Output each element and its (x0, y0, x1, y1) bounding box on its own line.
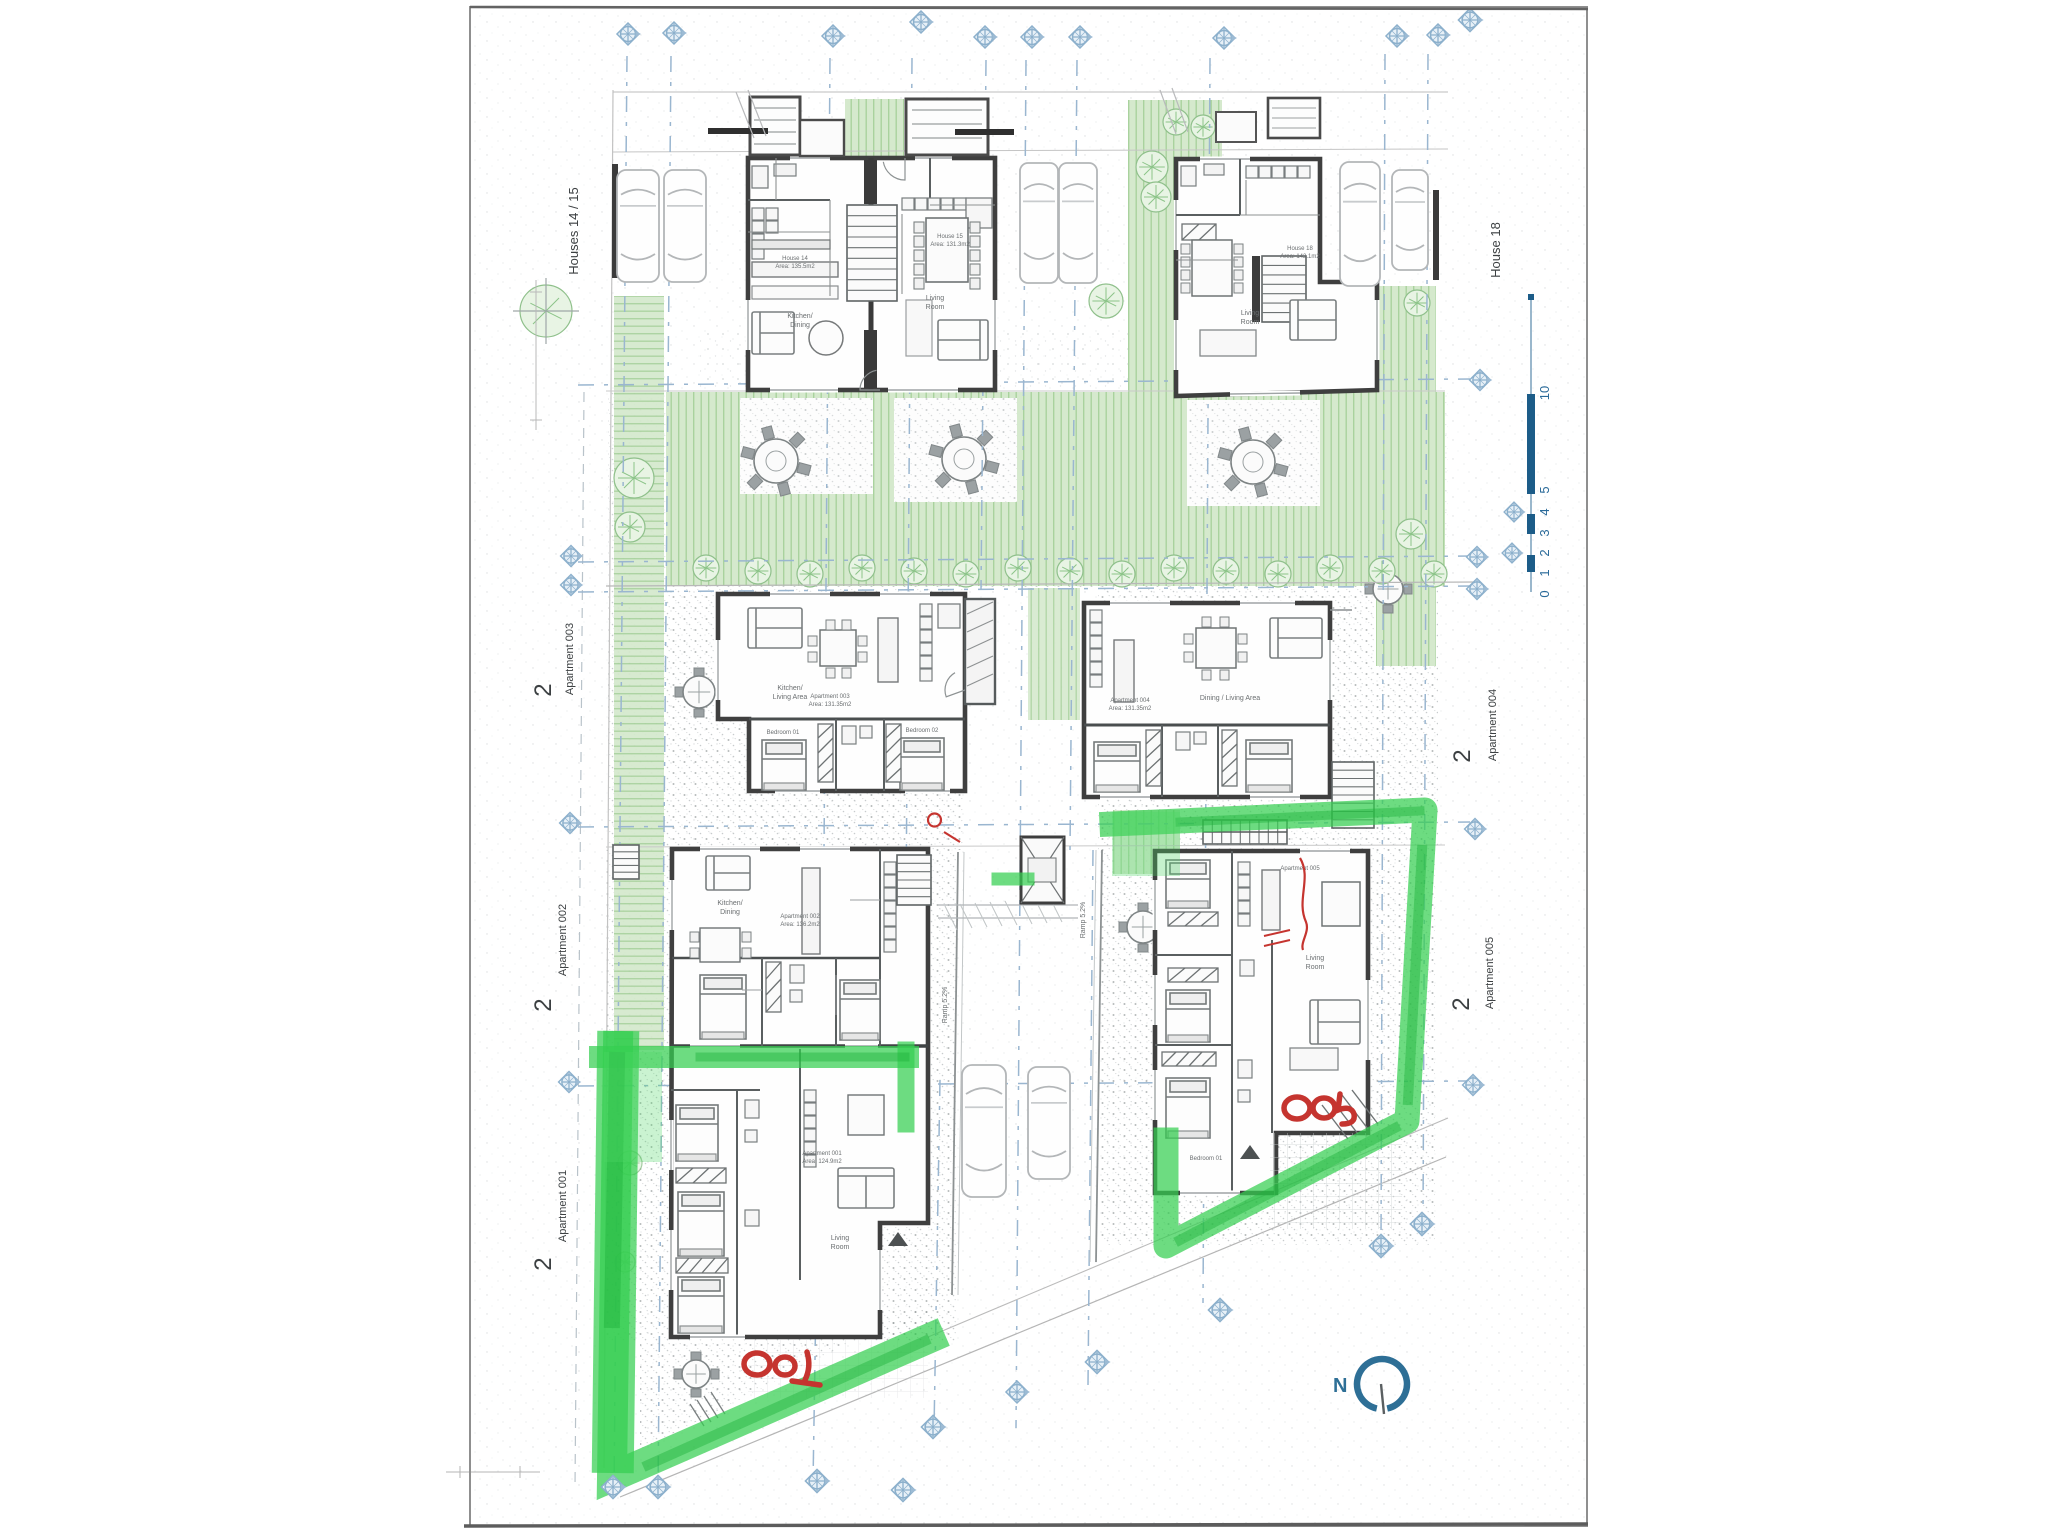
svg-text:0: 0 (1537, 590, 1552, 597)
svg-text:Room: Room (1306, 964, 1325, 971)
svg-text:Living: Living (926, 295, 944, 302)
svg-text:Apartment 003: Apartment 003 (810, 694, 850, 700)
svg-text:Dining: Dining (790, 322, 810, 329)
svg-text:2: 2 (1537, 549, 1552, 556)
svg-text:3: 3 (1537, 529, 1552, 536)
svg-text:2: 2 (1448, 997, 1475, 1010)
svg-text:Area: 135.5m2: Area: 135.5m2 (775, 264, 815, 270)
svg-text:Living: Living (1306, 955, 1324, 962)
svg-text:House 18: House 18 (1287, 246, 1313, 252)
svg-text:Living: Living (1241, 310, 1259, 317)
svg-text:Apartment 004: Apartment 004 (1487, 689, 1499, 761)
svg-text:Room: Room (926, 304, 945, 311)
svg-text:Apartment 001: Apartment 001 (557, 1170, 569, 1242)
svg-text:Kitchen/: Kitchen/ (787, 313, 812, 320)
svg-text:Apartment 005: Apartment 005 (1280, 866, 1320, 872)
svg-text:4: 4 (1537, 508, 1552, 515)
svg-text:Bedroom 02: Bedroom 02 (906, 728, 939, 734)
svg-text:Room: Room (831, 1244, 850, 1251)
svg-text:Area: 136.2m2: Area: 136.2m2 (780, 922, 820, 928)
svg-text:Apartment 002: Apartment 002 (557, 904, 569, 976)
svg-text:Area: 131.35m2: Area: 131.35m2 (1109, 706, 1152, 712)
svg-text:House 15: House 15 (937, 234, 963, 240)
svg-text:Apartment 003: Apartment 003 (564, 623, 576, 695)
svg-text:2: 2 (1449, 749, 1476, 762)
svg-text:Bedroom 01: Bedroom 01 (1190, 1156, 1223, 1162)
svg-text:Dining: Dining (720, 909, 740, 916)
svg-text:Houses 14 / 15: Houses 14 / 15 (566, 187, 581, 274)
svg-text:Dining / Living Area: Dining / Living Area (1200, 695, 1260, 702)
svg-text:Kitchen/: Kitchen/ (717, 900, 742, 907)
svg-text:10: 10 (1537, 386, 1552, 400)
svg-text:Bedroom 01: Bedroom 01 (767, 730, 800, 736)
svg-text:Area: 131.35m2: Area: 131.35m2 (809, 702, 852, 708)
svg-text:Living: Living (831, 1235, 849, 1242)
svg-text:House 18: House 18 (1488, 222, 1503, 278)
svg-text:Apartment 004: Apartment 004 (1110, 698, 1150, 704)
svg-text:Area: 124.9m2: Area: 124.9m2 (802, 1159, 842, 1165)
svg-text:Living Area: Living Area (773, 694, 808, 701)
svg-text:Area: 131.3m2: Area: 131.3m2 (930, 242, 970, 248)
svg-text:2: 2 (530, 998, 557, 1011)
svg-text:Ramp 5.2%: Ramp 5.2% (1080, 902, 1087, 939)
svg-text:5: 5 (1537, 486, 1552, 493)
svg-text:Ramp 5.2%: Ramp 5.2% (942, 987, 949, 1024)
svg-text:Room: Room (1241, 319, 1260, 326)
svg-text:2: 2 (530, 683, 557, 696)
svg-text:1: 1 (1537, 569, 1552, 576)
svg-text:2: 2 (530, 1257, 557, 1270)
svg-text:Area: 142.1m2: Area: 142.1m2 (1280, 254, 1320, 260)
svg-text:Apartment 001: Apartment 001 (802, 1151, 842, 1157)
svg-text:N: N (1333, 1375, 1347, 1397)
svg-text:Kitchen/: Kitchen/ (777, 685, 802, 692)
svg-text:House 14: House 14 (782, 256, 808, 262)
svg-text:Apartment 005: Apartment 005 (1484, 937, 1496, 1009)
svg-text:Apartment 002: Apartment 002 (780, 914, 820, 920)
